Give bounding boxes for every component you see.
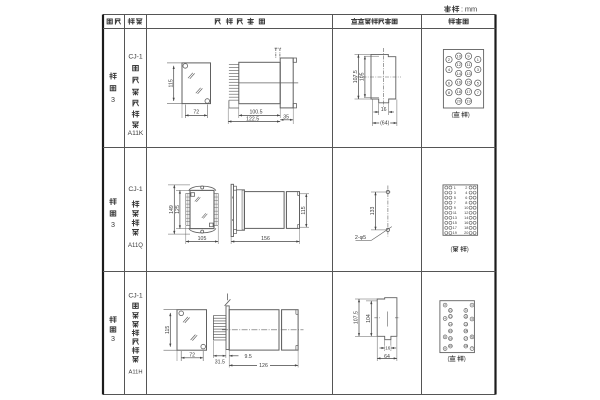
svg-text:122.5: 122.5 — [246, 116, 259, 122]
svg-text:(: ( — [448, 357, 450, 363]
svg-text:1: 1 — [471, 303, 473, 307]
svg-text:12: 12 — [464, 211, 468, 215]
svg-text:16: 16 — [449, 329, 453, 333]
svg-text:16: 16 — [381, 107, 387, 113]
svg-text:125: 125 — [175, 205, 181, 214]
svg-text::: : — [461, 4, 463, 13]
svg-text:7: 7 — [477, 90, 479, 95]
svg-text:107.5: 107.5 — [353, 70, 359, 83]
svg-text:14: 14 — [449, 322, 453, 326]
svg-text:3: 3 — [111, 220, 115, 229]
svg-text:12: 12 — [449, 314, 453, 318]
svg-text:15: 15 — [464, 329, 468, 333]
svg-text:13: 13 — [453, 216, 457, 220]
svg-text:16: 16 — [385, 346, 391, 351]
svg-text:13: 13 — [464, 322, 468, 326]
svg-text:7: 7 — [471, 347, 473, 351]
svg-text:2: 2 — [444, 303, 446, 307]
svg-text:4: 4 — [465, 191, 467, 195]
svg-text:9: 9 — [454, 206, 456, 210]
svg-text:20: 20 — [449, 344, 453, 348]
svg-text:126: 126 — [259, 363, 268, 369]
svg-text:105: 105 — [359, 72, 365, 81]
svg-text:19: 19 — [466, 99, 470, 104]
svg-text:3: 3 — [454, 191, 456, 195]
svg-text:5: 5 — [454, 196, 456, 200]
svg-text:115: 115 — [165, 326, 171, 334]
svg-text:17: 17 — [453, 226, 457, 230]
svg-text:(64): (64) — [380, 121, 389, 127]
svg-text:5: 5 — [477, 80, 479, 85]
svg-text:9: 9 — [467, 54, 469, 59]
svg-text:2: 2 — [448, 57, 450, 62]
svg-text:31.5: 31.5 — [215, 359, 225, 365]
svg-text:105: 105 — [198, 236, 207, 242]
svg-text:156: 156 — [261, 236, 270, 242]
svg-text:4: 4 — [444, 317, 446, 321]
svg-text:6: 6 — [465, 196, 467, 200]
svg-text:17: 17 — [464, 337, 468, 341]
svg-text:18: 18 — [449, 337, 453, 341]
svg-text:8: 8 — [444, 347, 446, 351]
svg-text:3: 3 — [471, 317, 473, 321]
svg-text:1: 1 — [477, 57, 479, 62]
svg-text:12: 12 — [457, 62, 461, 67]
svg-text:mm: mm — [465, 5, 477, 14]
svg-text:3: 3 — [477, 67, 479, 72]
svg-text:CJ-1: CJ-1 — [128, 54, 143, 61]
svg-text:72: 72 — [189, 352, 195, 358]
svg-text:11: 11 — [464, 314, 467, 318]
svg-text:A11K: A11K — [128, 130, 144, 137]
svg-text:16: 16 — [464, 221, 468, 225]
svg-text:6: 6 — [444, 335, 446, 339]
svg-text:19: 19 — [464, 344, 468, 348]
svg-text:115: 115 — [301, 206, 307, 214]
svg-text:17: 17 — [466, 89, 470, 94]
svg-text:8: 8 — [448, 90, 450, 95]
svg-text:): ) — [467, 247, 469, 253]
svg-text:64: 64 — [384, 354, 390, 360]
svg-text:16: 16 — [457, 80, 461, 85]
svg-text:20: 20 — [464, 231, 468, 235]
svg-text:CJ-1: CJ-1 — [128, 186, 143, 193]
svg-text:19: 19 — [453, 231, 457, 235]
svg-text:100.5: 100.5 — [250, 110, 263, 116]
svg-text:1: 1 — [454, 186, 456, 190]
svg-text:8: 8 — [465, 201, 467, 205]
svg-text:(: ( — [452, 113, 454, 119]
svg-text:CJ-1: CJ-1 — [128, 292, 143, 299]
svg-text:18: 18 — [457, 89, 461, 94]
svg-text:): ) — [468, 113, 470, 119]
svg-text:18: 18 — [464, 226, 468, 230]
svg-text:115: 115 — [168, 79, 174, 87]
svg-text:5: 5 — [471, 335, 473, 339]
svg-text:104: 104 — [366, 314, 372, 323]
svg-text:15: 15 — [466, 80, 470, 85]
svg-text:(: ( — [451, 247, 453, 253]
svg-text:): ) — [464, 357, 466, 363]
svg-text:11: 11 — [453, 211, 457, 215]
svg-text:11: 11 — [466, 62, 470, 67]
svg-text:3: 3 — [111, 95, 115, 104]
svg-text:6: 6 — [448, 80, 450, 85]
svg-text:107.5: 107.5 — [354, 311, 360, 324]
svg-text:3: 3 — [111, 334, 115, 343]
svg-text:15: 15 — [453, 221, 457, 225]
svg-text:9.5: 9.5 — [245, 354, 252, 360]
svg-text:9: 9 — [465, 308, 467, 312]
svg-text:10: 10 — [449, 308, 453, 312]
svg-text:133: 133 — [370, 207, 376, 216]
svg-text:A11Q: A11Q — [128, 243, 143, 249]
svg-text:A11H: A11H — [128, 369, 142, 375]
svg-text:14: 14 — [464, 216, 468, 220]
svg-text:72: 72 — [193, 110, 199, 116]
svg-text:7: 7 — [454, 201, 456, 205]
svg-text:35: 35 — [283, 114, 289, 120]
svg-text:10: 10 — [464, 206, 468, 210]
svg-text:13: 13 — [466, 71, 470, 76]
svg-text:2: 2 — [465, 186, 467, 190]
svg-text:2-φ5: 2-φ5 — [355, 235, 366, 241]
